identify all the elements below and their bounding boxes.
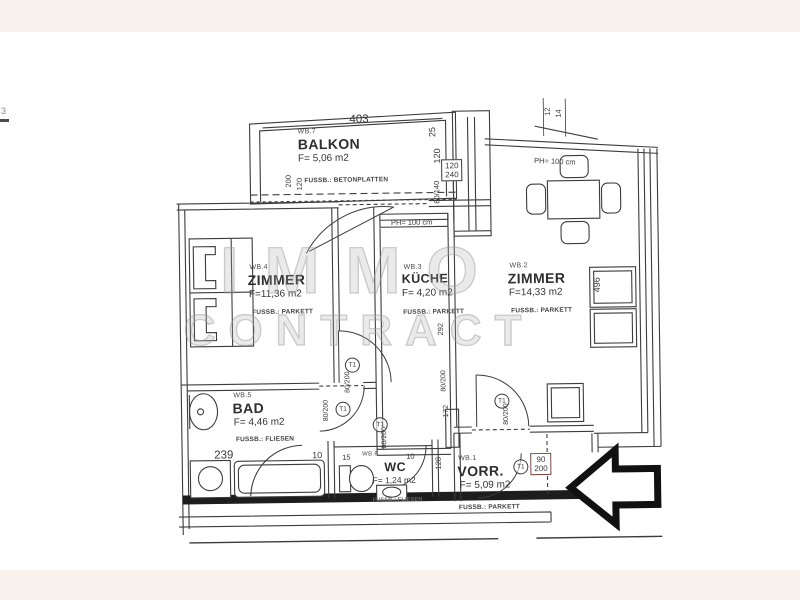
room-code-balkon: WB.7 xyxy=(298,128,316,135)
room-name-wc: WC xyxy=(384,461,406,474)
door-size-kueche: 80/200 xyxy=(344,371,351,393)
dim-parapet-b: PH= 100 cm xyxy=(534,157,576,166)
dim-corner-14: 14 xyxy=(555,109,563,117)
furniture-bed xyxy=(189,238,254,347)
room-floor-bad: FUSSB.: FLIESEN xyxy=(236,436,294,443)
room-floor-kueche: FUSSB.: PARKETT xyxy=(403,309,464,316)
entrance-arrow xyxy=(570,449,658,524)
room-code-bad: WB.5 xyxy=(233,392,251,399)
door-size-zimmer-rechts: 80/200 xyxy=(503,403,510,425)
furniture-cabinet xyxy=(445,383,584,447)
room-floor-balkon: FUSSB.: BETONPLATTEN xyxy=(304,177,388,185)
room-floor-zimmer-links: FUSSB.: PARKETT xyxy=(252,309,313,316)
room-name-kueche: KÜCHE xyxy=(402,272,449,285)
dim-hall-172: 172 xyxy=(442,405,450,418)
room-area-balkon: F= 5,06 m2 xyxy=(298,154,349,165)
dim-balcony-door-h: 120 xyxy=(296,178,304,191)
floorplan-drawing: WB.7 BALKON F= 5,06 m2 FUSSB.: BETONPLAT… xyxy=(0,0,800,600)
room-name-zimmer-links: ZIMMER xyxy=(248,272,306,287)
room-floor-vorraum: FUSSB.: PARKETT xyxy=(459,504,520,511)
room-code-wc: WB.6 xyxy=(362,451,378,457)
fixture-washing-machine xyxy=(190,460,231,498)
floorplan-linework xyxy=(0,0,800,600)
dim-window-height: 240 xyxy=(445,170,458,179)
dim-balkon-25: 25 xyxy=(428,127,437,137)
furniture-dining-table xyxy=(526,155,621,244)
dim-kitchen-length: 292 xyxy=(437,323,445,336)
room-floor-zimmer-rechts: FUSSB.: PARKETT xyxy=(511,308,572,315)
door-tag-icon: T1 xyxy=(513,459,528,474)
room-area-vorraum: F= 5,09 m2 xyxy=(460,480,511,491)
dim-room-right-length: 496 xyxy=(593,277,602,292)
scanned-floorplan-page: 3 xyxy=(0,0,800,600)
door-size-entrance: 90 200 xyxy=(530,453,552,476)
dim-bad-width: 239 xyxy=(214,450,233,462)
room-name-vorraum: VORR. xyxy=(457,464,504,479)
room-floor-wc: FUSSB.: FLIESEN xyxy=(373,498,423,504)
dim-window-sill: 120 xyxy=(445,161,458,170)
fixture-toilet xyxy=(339,465,373,491)
room-code-zimmer-rechts: WB.2 xyxy=(509,262,527,269)
dim-window-80-140: 80/140 xyxy=(433,181,441,204)
door-size-bad: 80/200 xyxy=(323,400,330,422)
room-name-zimmer-rechts: ZIMMER xyxy=(508,271,566,286)
door-entrance-width: 90 xyxy=(536,455,545,464)
door-size-wc: 80/200 xyxy=(381,427,388,449)
door-tag-icon: T1 xyxy=(345,358,360,373)
dim-window-120-240: 120 240 xyxy=(441,159,463,182)
room-code-zimmer-links: WB.4 xyxy=(249,264,267,271)
room-name-bad: BAD xyxy=(232,401,264,415)
fixture-washbasin xyxy=(189,394,217,430)
room-area-bad: F= 4,46 m2 xyxy=(234,418,285,429)
dim-corner-12: 12 xyxy=(544,107,552,115)
dim-parapet-a: PH= 100 cm xyxy=(391,219,433,227)
room-name-balkon: BALKON xyxy=(298,137,360,152)
dim-hall-128: 128 xyxy=(435,457,443,470)
room-code-vorraum: WB.1 xyxy=(458,455,476,462)
door-entrance-height: 200 xyxy=(534,464,547,473)
door-size-hall: 80/200 xyxy=(440,370,447,392)
dim-balkon-length: 403 xyxy=(349,114,368,126)
dim-wall-10-b: 10 xyxy=(406,453,414,461)
room-code-kueche: WB.3 xyxy=(403,264,421,271)
room-area-zimmer-rechts: F=14,33 m2 xyxy=(509,288,563,299)
dim-wall-10-a: 10 xyxy=(312,451,322,460)
room-area-wc: F= 1,24 m2 xyxy=(372,476,415,485)
room-area-zimmer-links: F=11,36 m2 xyxy=(249,289,302,300)
fixture-bathtub xyxy=(234,445,325,497)
room-area-kueche: F= 4,20 m2 xyxy=(402,288,453,299)
door-swings xyxy=(306,205,530,501)
dim-bad-15: 15 xyxy=(342,454,350,462)
dim-balcony-door-w: 200 xyxy=(285,175,293,188)
